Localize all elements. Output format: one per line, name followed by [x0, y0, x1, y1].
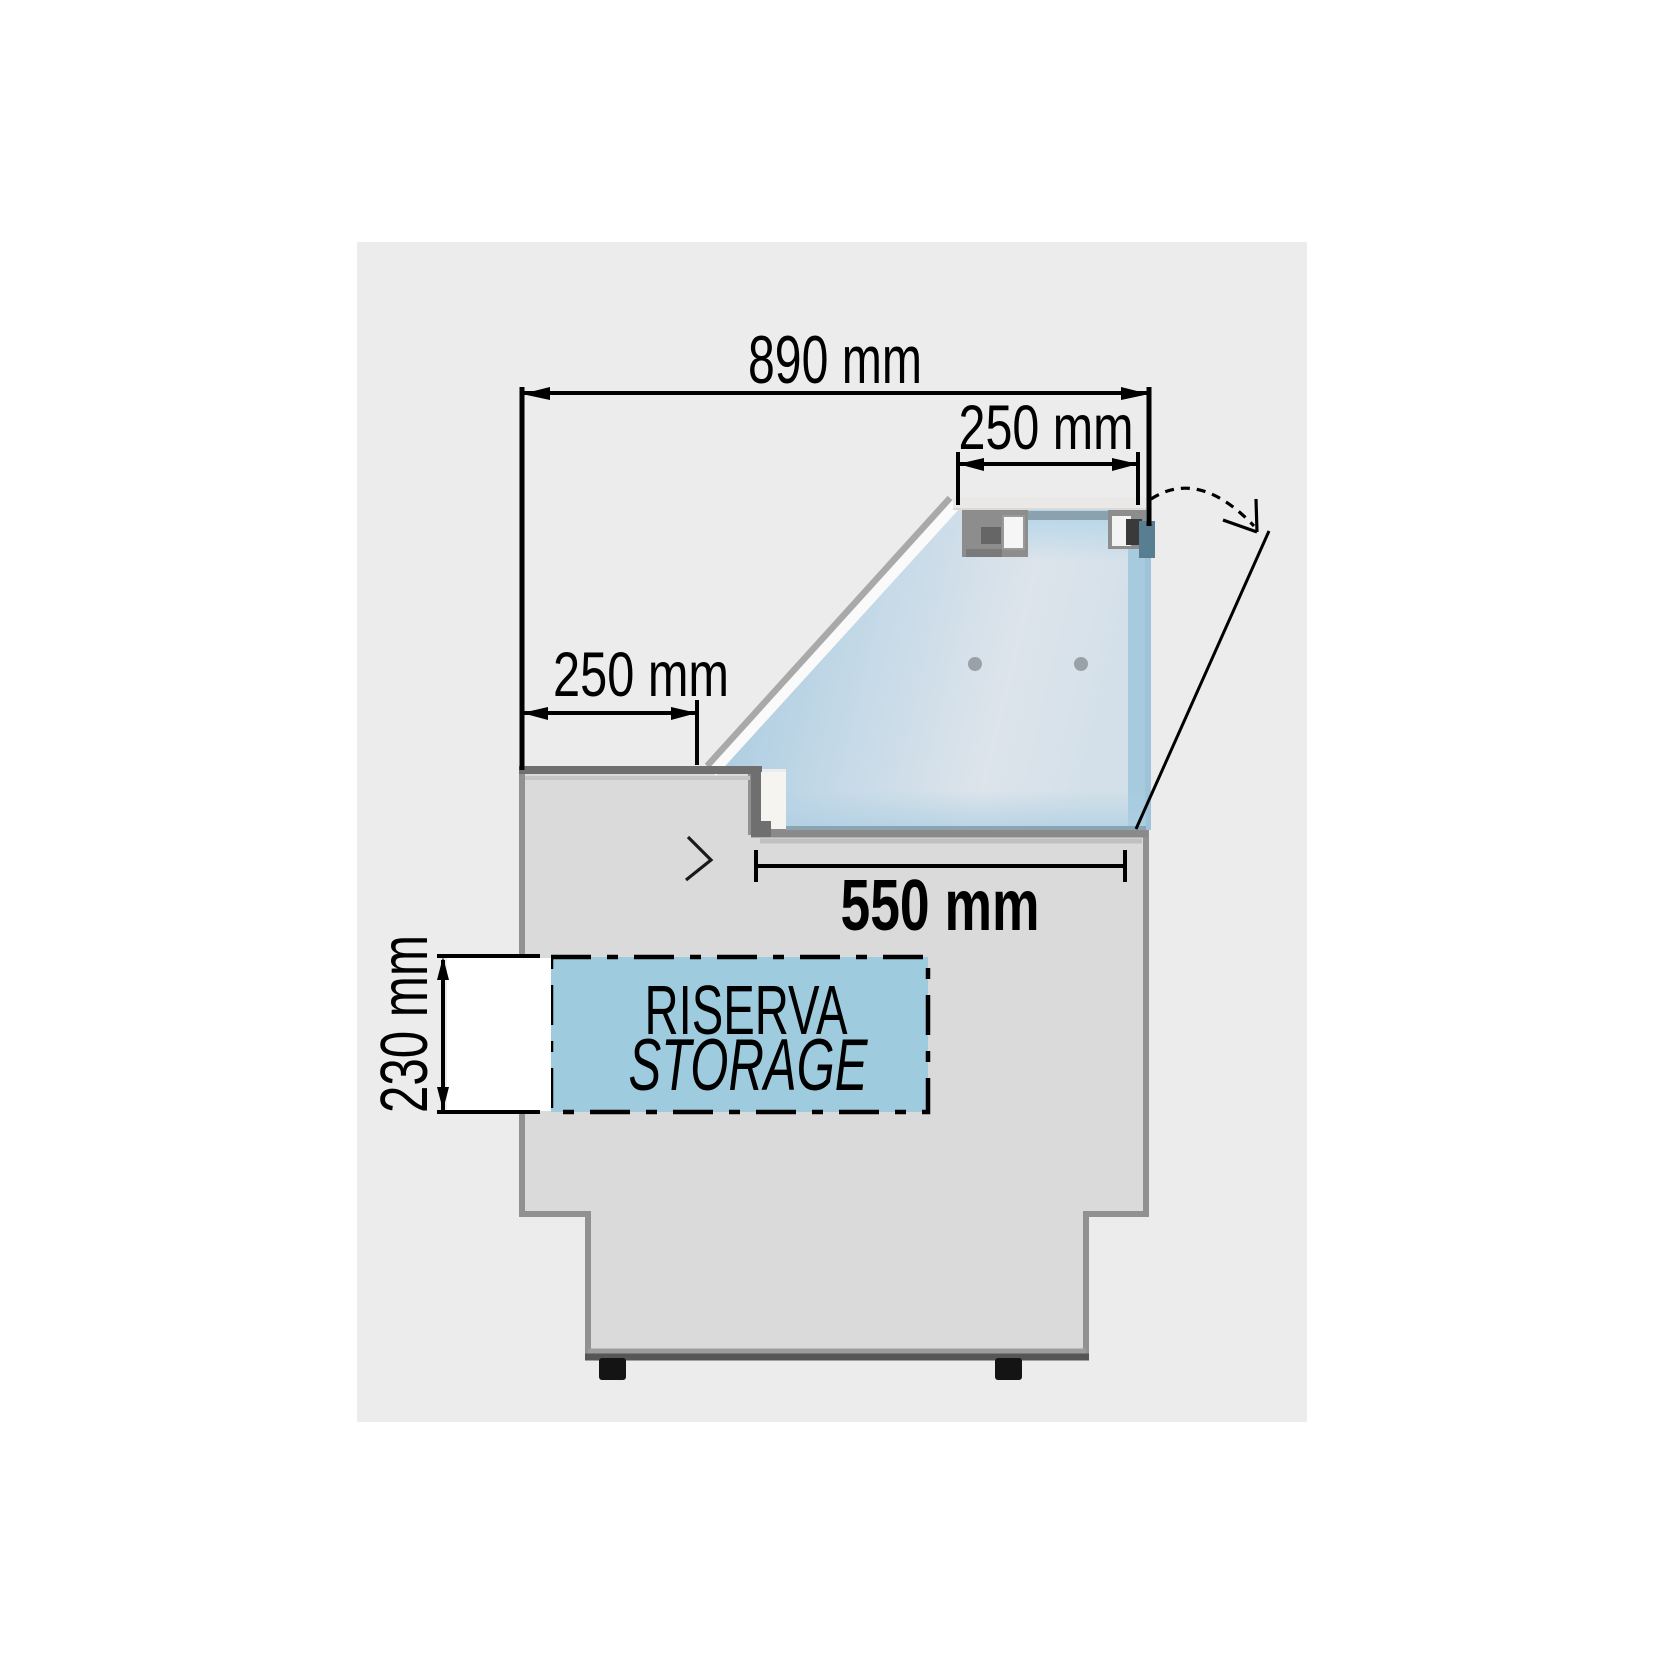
svg-text:250 mm: 250 mm	[553, 640, 729, 710]
svg-text:550 mm: 550 mm	[841, 866, 1040, 946]
svg-text:230 mm: 230 mm	[367, 935, 442, 1113]
svg-text:STORAGE: STORAGE	[629, 1025, 869, 1106]
svg-text:890 mm: 890 mm	[748, 322, 922, 398]
svg-text:250 mm: 250 mm	[959, 393, 1134, 463]
